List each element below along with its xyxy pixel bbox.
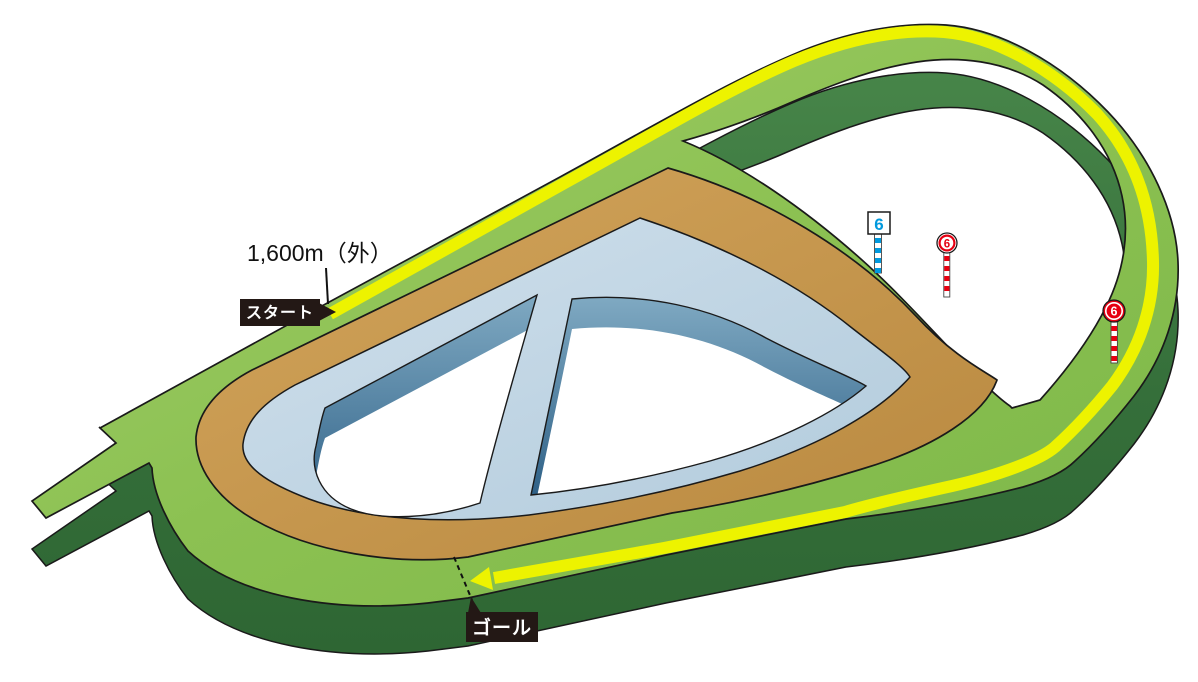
- marker-label: 6: [944, 239, 950, 251]
- distance-label: 1,600m（外）: [247, 240, 393, 266]
- marker-label: 6: [1111, 305, 1118, 319]
- racecourse-diagram: 1,600m（外） スタート ゴール 6 6: [0, 0, 1198, 682]
- course-map: 1,600m（外） スタート ゴール 6 6: [0, 0, 1198, 682]
- furlong-marker-blue-square: 6: [868, 212, 890, 273]
- furlong-marker-red-circle-outline: 6: [937, 233, 957, 297]
- start-label-text: スタート: [246, 304, 314, 322]
- goal-label-text: ゴール: [472, 616, 532, 639]
- distance-pointer-line: [326, 268, 328, 304]
- marker-label: 6: [874, 215, 883, 234]
